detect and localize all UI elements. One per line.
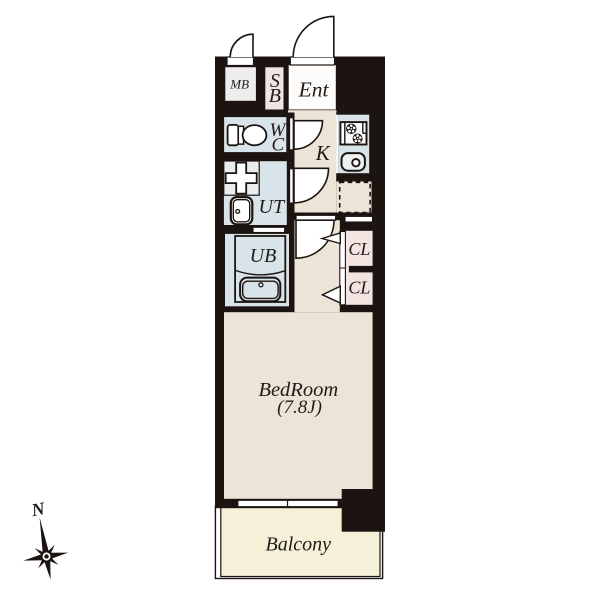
svg-text:UB: UB [250,245,277,267]
svg-text:Ent: Ent [298,78,330,102]
svg-text:UT: UT [259,196,286,218]
svg-text:Balcony: Balcony [266,533,332,555]
svg-text:MB: MB [229,76,249,91]
svg-text:C: C [272,135,285,156]
svg-text:K: K [315,141,331,165]
svg-text:B: B [269,85,281,107]
svg-text:CL: CL [348,239,370,259]
svg-text:(7.8J): (7.8J) [277,397,322,418]
svg-text:CL: CL [348,278,370,298]
